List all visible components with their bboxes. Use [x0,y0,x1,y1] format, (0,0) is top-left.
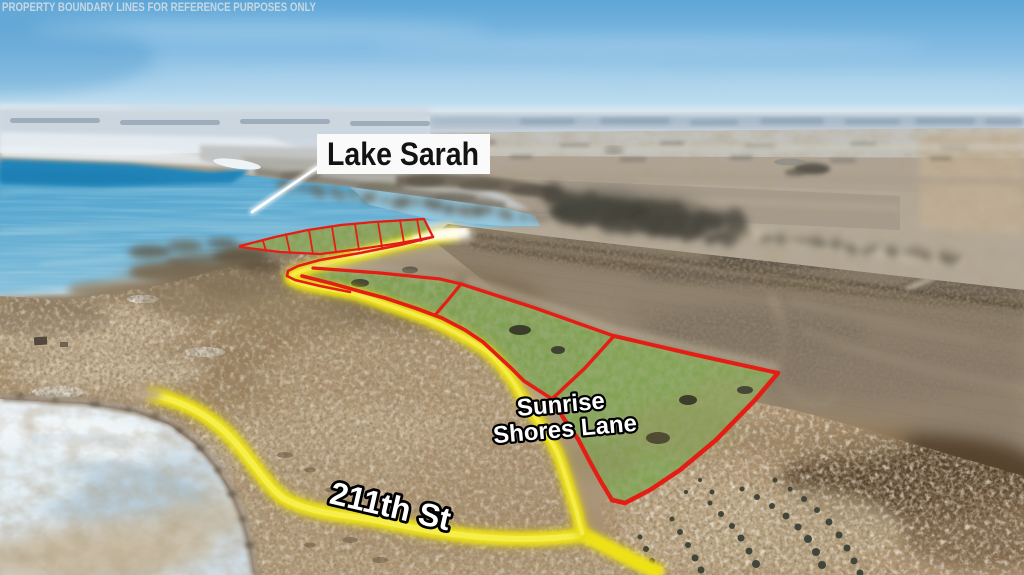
svg-text:Lake Sarah: Lake Sarah [327,136,479,172]
svg-text:PROPERTY BOUNDARY LINES FOR RE: PROPERTY BOUNDARY LINES FOR REFERENCE PU… [2,2,316,14]
